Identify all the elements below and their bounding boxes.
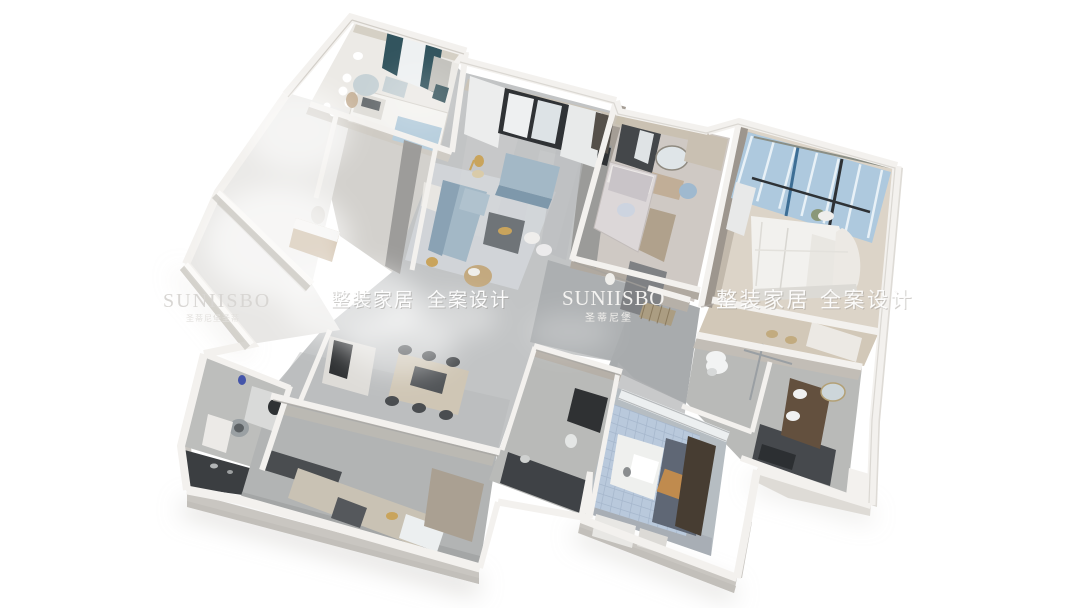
svg-text:SUNIISBO: SUNIISBO (163, 290, 271, 312)
svg-text:整装家居: 整装家居 (331, 289, 415, 311)
svg-text:全案设计: 全案设计 (427, 289, 511, 311)
svg-text:SUNIISBO: SUNIISBO (562, 286, 665, 310)
svg-text:圣蒂尼堡: 圣蒂尼堡 (585, 311, 633, 324)
svg-text:整装家居: 整装家居 (716, 288, 810, 312)
svg-text:全案设计: 全案设计 (820, 288, 914, 312)
svg-text:圣蒂尼堡圣蒂: 圣蒂尼堡圣蒂 (186, 313, 240, 323)
